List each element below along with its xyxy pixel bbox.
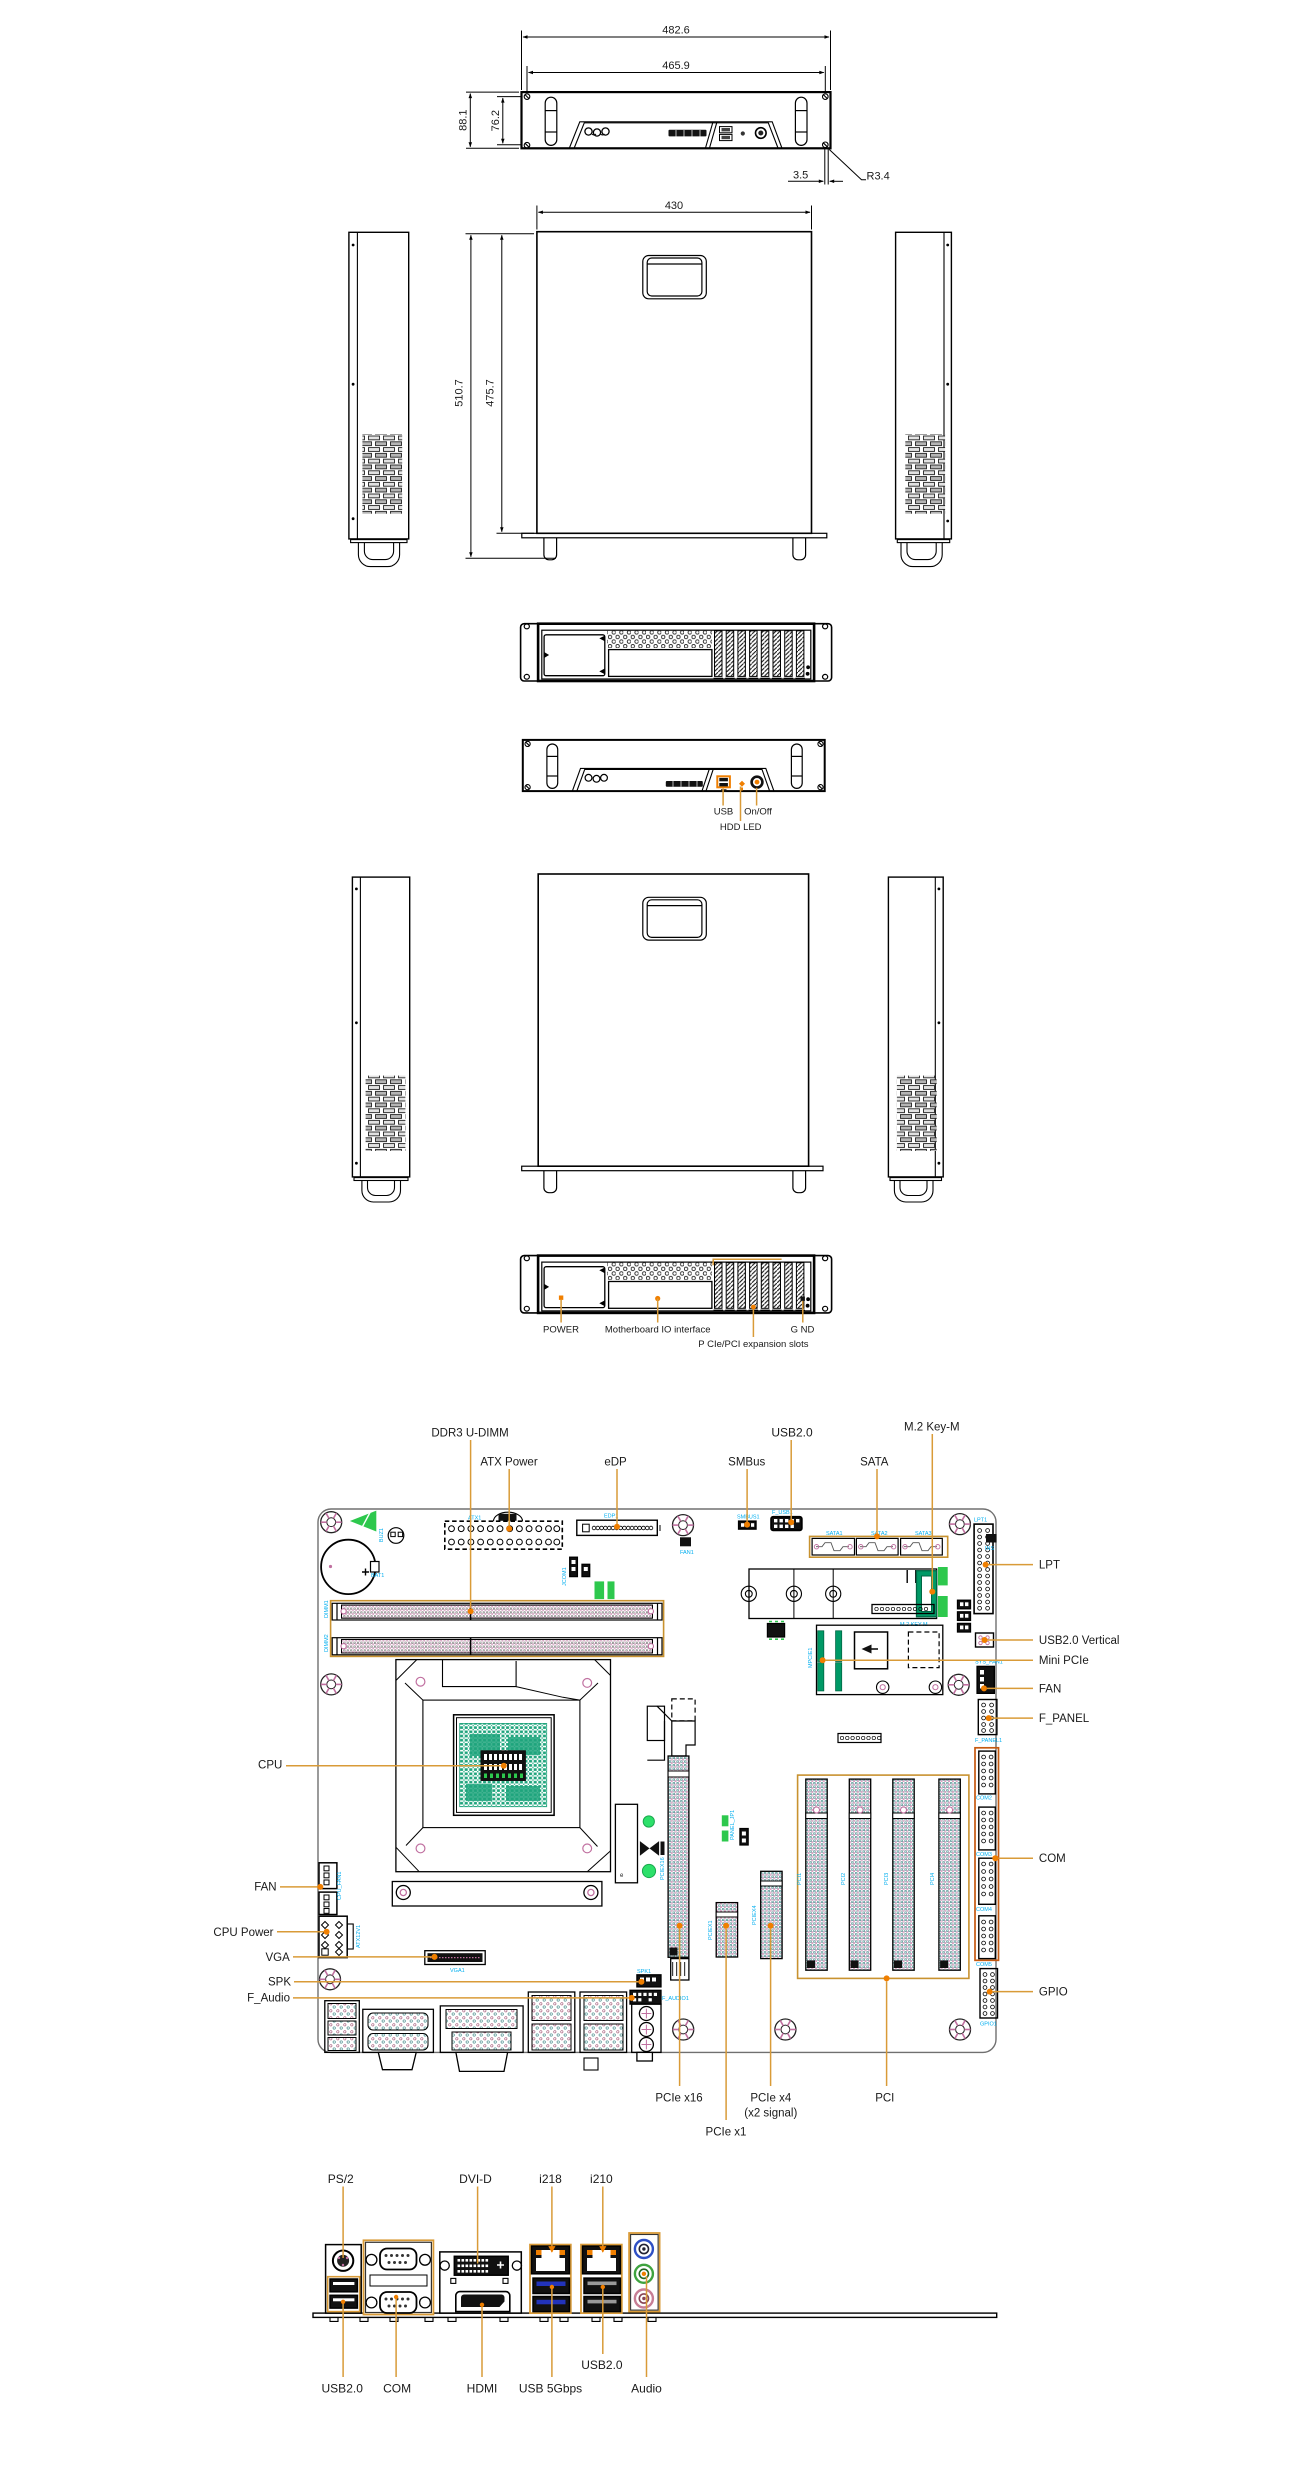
- svg-text:HDMI: HDMI: [467, 2382, 498, 2396]
- svg-text:465.9: 465.9: [662, 60, 690, 72]
- svg-text:PCI3: PCI3: [884, 1873, 890, 1885]
- svg-text:PCIe x1: PCIe x1: [706, 2127, 747, 2139]
- svg-text:R3.4: R3.4: [867, 171, 890, 183]
- svg-text:COM3: COM3: [976, 1852, 992, 1858]
- svg-text:COM5: COM5: [976, 1962, 992, 1968]
- svg-text:PCI1: PCI1: [797, 1873, 803, 1885]
- svg-text:3.5: 3.5: [793, 170, 808, 182]
- svg-text:F_PANEL: F_PANEL: [1039, 1713, 1090, 1725]
- svg-text:COM4: COM4: [976, 1907, 992, 1913]
- svg-text:F_USB1: F_USB1: [772, 1510, 793, 1516]
- svg-text:COM2: COM2: [976, 1796, 992, 1802]
- svg-text:MPCIE1: MPCIE1: [808, 1648, 814, 1668]
- svg-text:SATA: SATA: [860, 1457, 889, 1469]
- svg-text:GPIO1: GPIO1: [980, 2022, 997, 2028]
- svg-text:DDR3 U-DIMM: DDR3 U-DIMM: [431, 1428, 508, 1440]
- svg-text:PCIEX1: PCIEX1: [708, 1920, 714, 1940]
- svg-text:F_AUDIO1: F_AUDIO1: [662, 1996, 689, 2002]
- svg-text:COM: COM: [383, 2382, 411, 2396]
- svg-text:i218: i218: [539, 2172, 562, 2186]
- svg-text:PANEL_JP1: PANEL_JP1: [730, 1810, 736, 1840]
- svg-text:510.7: 510.7: [454, 379, 466, 407]
- svg-text:GPIO: GPIO: [1039, 1987, 1068, 1999]
- svg-text:FAN: FAN: [254, 1882, 276, 1894]
- svg-text:PCIEX4: PCIEX4: [752, 1905, 758, 1925]
- svg-text:USB2.0: USB2.0: [322, 2382, 364, 2396]
- svg-text:G ND: G ND: [791, 1325, 815, 1336]
- svg-text:VGA1: VGA1: [450, 1968, 465, 1974]
- svg-text:PCI4: PCI4: [930, 1873, 936, 1885]
- svg-text:475.7: 475.7: [484, 379, 496, 407]
- svg-text:On/Off: On/Off: [744, 807, 772, 818]
- svg-text:POWER: POWER: [543, 1325, 579, 1336]
- svg-text:ATX12V1: ATX12V1: [356, 1925, 362, 1948]
- svg-text:PCIEX16: PCIEX16: [660, 1857, 666, 1880]
- svg-text:COM: COM: [1039, 1853, 1066, 1865]
- svg-text:DVI-D: DVI-D: [459, 2172, 492, 2186]
- svg-text:LPT: LPT: [1039, 1560, 1060, 1572]
- svg-text:DIMM1: DIMM1: [324, 1600, 330, 1618]
- svg-text:INS: INS: [985, 1546, 995, 1552]
- svg-text:F_Audio: F_Audio: [247, 1993, 290, 2005]
- svg-text:HDD LED: HDD LED: [720, 822, 762, 833]
- svg-text:FAN1: FAN1: [680, 1550, 694, 1556]
- svg-text:FAN: FAN: [1039, 1684, 1061, 1696]
- svg-text:VGA: VGA: [266, 1952, 291, 1964]
- svg-text:ATX Power: ATX Power: [480, 1457, 537, 1469]
- svg-text:SATA1: SATA1: [826, 1531, 843, 1537]
- svg-text:USB2.0: USB2.0: [771, 1426, 813, 1440]
- svg-text:PS/2: PS/2: [328, 2172, 354, 2186]
- svg-text:PCI: PCI: [875, 2093, 894, 2105]
- svg-text:430: 430: [665, 200, 683, 212]
- svg-text:Mini PCIe: Mini PCIe: [1039, 1655, 1089, 1667]
- svg-text:SPK: SPK: [268, 1977, 291, 1989]
- svg-text:BUZ1: BUZ1: [379, 1528, 385, 1542]
- svg-text:88.1: 88.1: [458, 109, 470, 130]
- svg-text:PCI2: PCI2: [841, 1873, 847, 1885]
- svg-text:e: e: [620, 1873, 624, 1879]
- svg-text:CPU Power: CPU Power: [213, 1927, 273, 1939]
- svg-text:SATA3: SATA3: [915, 1531, 932, 1537]
- svg-text:SMBUS1: SMBUS1: [737, 1515, 760, 1521]
- svg-text:USB 5Gbps: USB 5Gbps: [519, 2382, 582, 2396]
- svg-text:USB2.0: USB2.0: [581, 2358, 623, 2372]
- svg-text:SPK1: SPK1: [637, 1969, 651, 1975]
- svg-text:Audio: Audio: [631, 2382, 662, 2396]
- svg-text:76.2: 76.2: [490, 110, 502, 131]
- svg-text:USB2.0 Vertical: USB2.0 Vertical: [1039, 1635, 1120, 1647]
- svg-text:JCOM1: JCOM1: [562, 1567, 568, 1586]
- svg-text:BAT1: BAT1: [371, 1573, 384, 1579]
- svg-text:USB: USB: [714, 807, 734, 818]
- svg-text:i210: i210: [590, 2172, 613, 2186]
- svg-text:(x2 signal): (x2 signal): [744, 2108, 797, 2120]
- svg-text:482.6: 482.6: [662, 25, 690, 37]
- svg-text:PCIe x4: PCIe x4: [750, 2093, 792, 2105]
- svg-text:SMBus: SMBus: [728, 1457, 765, 1469]
- svg-text:DIMM2: DIMM2: [324, 1634, 330, 1652]
- svg-text:CPU_FAN1: CPU_FAN1: [337, 1872, 343, 1900]
- svg-text:F_PANEL1: F_PANEL1: [975, 1738, 1002, 1744]
- svg-text:PCIe x16: PCIe x16: [655, 2093, 702, 2105]
- svg-text:Motherboard IO interface: Motherboard IO interface: [605, 1325, 711, 1336]
- svg-text:CPU: CPU: [258, 1760, 282, 1772]
- svg-text:P CIe/PCI expansion slots: P CIe/PCI expansion slots: [698, 1339, 808, 1350]
- svg-text:EDP1: EDP1: [604, 1514, 618, 1520]
- svg-text:eDP: eDP: [604, 1457, 627, 1469]
- svg-text:LPT1: LPT1: [974, 1518, 987, 1524]
- svg-text:M.2 Key-M: M.2 Key-M: [904, 1422, 960, 1434]
